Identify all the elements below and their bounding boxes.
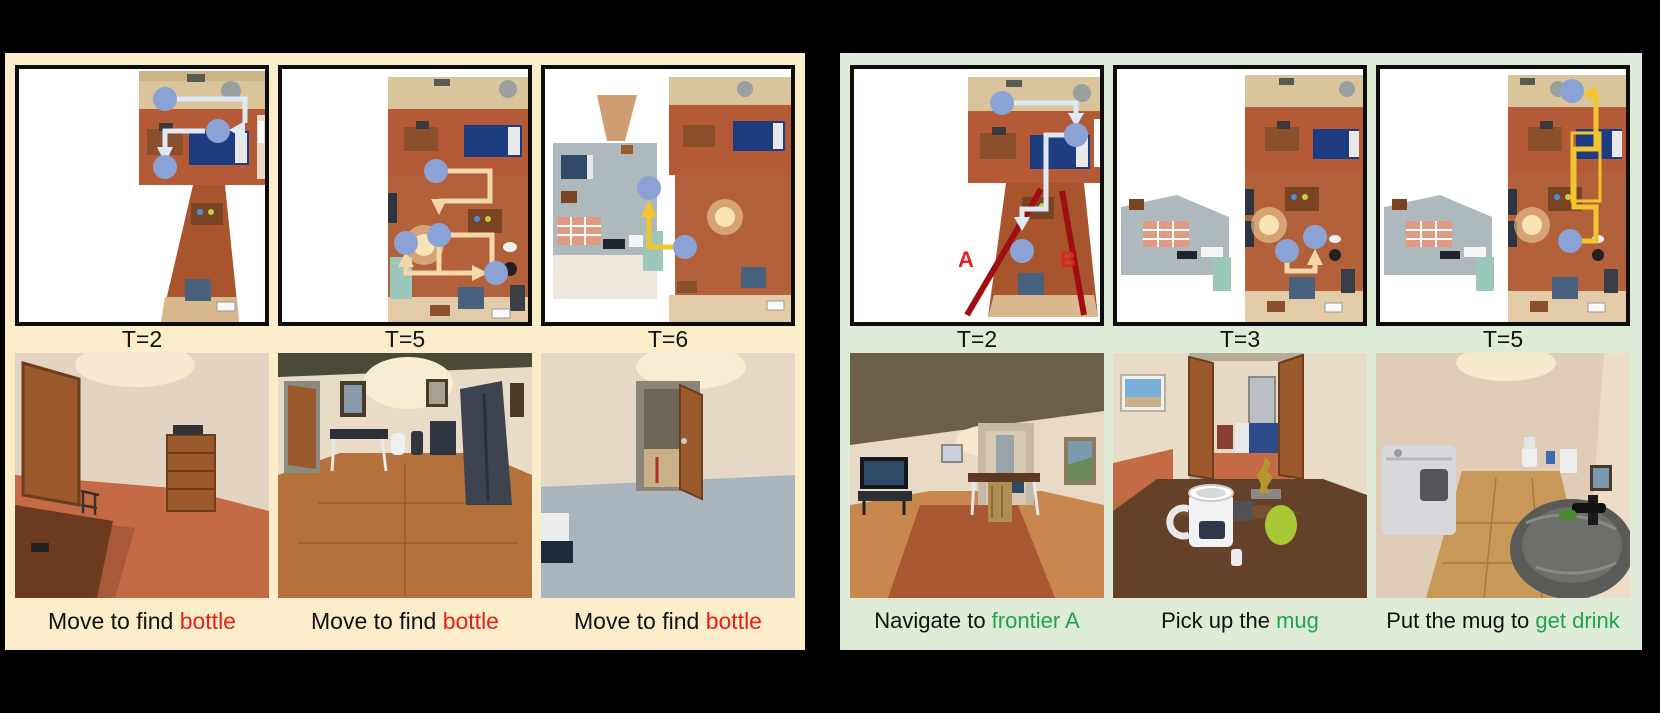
topdown-map-svg xyxy=(282,69,528,322)
caption-text: Pick up the xyxy=(1161,608,1276,633)
time-label: T=2 xyxy=(850,326,1104,353)
caption-highlight: bottle xyxy=(180,608,236,634)
agent-dot xyxy=(990,91,1014,115)
topdown-map-right-t3 xyxy=(1113,65,1367,326)
desk xyxy=(1265,127,1299,151)
left-column-1: T=2 Move to find bo xyxy=(15,65,269,650)
speaker xyxy=(1341,269,1355,293)
pear xyxy=(1265,505,1297,545)
desk xyxy=(1528,127,1562,151)
time-label: T=3 xyxy=(1113,326,1367,353)
caption: Put the mug to get drink xyxy=(1376,608,1630,634)
vacuum-icon xyxy=(1073,84,1091,102)
agent-dot xyxy=(1064,123,1088,147)
painting xyxy=(942,445,962,462)
speaker xyxy=(1604,269,1618,293)
caption-highlight: get drink xyxy=(1535,608,1619,633)
teal-cabinet xyxy=(643,231,663,271)
agent-dot xyxy=(1560,79,1584,103)
caption-text: Put the mug to xyxy=(1386,608,1535,633)
shelf xyxy=(191,203,223,225)
time-label: T=6 xyxy=(541,326,795,353)
topdown-map-left-t5 xyxy=(278,65,532,326)
dresser xyxy=(167,435,215,511)
time-label: T=5 xyxy=(1376,326,1630,353)
agent-dot xyxy=(1303,225,1327,249)
shelf xyxy=(561,191,577,203)
cabinet xyxy=(430,421,456,455)
plaid-bed xyxy=(557,217,601,245)
right-column-1: A B T=2 xyxy=(850,65,1104,650)
caption: Navigate to frontier A xyxy=(850,608,1104,634)
tv-stand xyxy=(858,491,912,501)
inner-floor xyxy=(1201,453,1291,483)
bed-frame xyxy=(541,541,573,563)
small-desk xyxy=(1217,425,1233,449)
blue-box xyxy=(1289,277,1315,299)
table xyxy=(968,473,1040,482)
fpv-svg xyxy=(541,353,795,598)
topdown-map-svg xyxy=(19,69,265,322)
fpv-svg xyxy=(1113,353,1367,598)
plaid-bed xyxy=(1406,221,1452,247)
livingroom-floor xyxy=(675,175,791,299)
caption-highlight: mug xyxy=(1276,608,1319,633)
shelf xyxy=(468,209,502,233)
lamp-glow xyxy=(1522,215,1542,235)
topdown-map-right-t5 xyxy=(1376,65,1630,326)
fpv-svg xyxy=(15,353,269,598)
bed-mattress xyxy=(541,513,569,545)
wall-strip xyxy=(669,77,791,105)
blue-box xyxy=(1018,273,1044,295)
speaker xyxy=(510,285,525,311)
caption-highlight: frontier A xyxy=(992,608,1080,633)
agent-dot xyxy=(394,231,418,255)
teal-cabinet xyxy=(1476,257,1494,291)
desk xyxy=(980,133,1016,159)
door xyxy=(621,145,633,154)
floor xyxy=(541,475,795,598)
lamp-glow xyxy=(715,207,735,227)
frontier-label-a: A xyxy=(958,247,974,272)
caption: Move to find bottle xyxy=(15,608,269,635)
cabinet xyxy=(1560,449,1577,473)
caption-text: Move to find xyxy=(574,608,706,634)
fpv-right-t5 xyxy=(1376,353,1630,598)
mirror xyxy=(1508,189,1517,215)
agent-dot xyxy=(1275,239,1299,263)
caption-highlight: bottle xyxy=(706,608,762,634)
caption: Move to find bottle xyxy=(278,608,532,635)
table xyxy=(15,505,113,598)
agent-dot xyxy=(673,235,697,259)
figure-canvas: T=2 Move to find bo xyxy=(0,0,1660,713)
agent-dot xyxy=(484,261,508,285)
mug-label xyxy=(1199,521,1225,539)
mirror xyxy=(996,435,1014,479)
fpv-left-t5 xyxy=(278,353,532,598)
trash-can xyxy=(1546,451,1555,464)
left-column-3: T=6 Move to find bottle xyxy=(541,65,795,650)
topdown-map-left-t6 xyxy=(541,65,795,326)
fpv-right-t2 xyxy=(850,353,1104,598)
fpv-left-t2 xyxy=(15,353,269,598)
green-item xyxy=(1559,509,1577,521)
caption: Pick up the mug xyxy=(1113,608,1367,634)
right-column-3: T=5 xyxy=(1376,65,1630,650)
agent-dot xyxy=(206,119,230,143)
agent-dot xyxy=(637,176,661,200)
blue-box xyxy=(185,279,211,301)
left-column-2: T=5 xyxy=(278,65,532,650)
trash-can xyxy=(411,431,423,455)
topdown-map-svg xyxy=(1380,69,1626,322)
fpv-svg xyxy=(278,353,532,598)
blue-dresser xyxy=(561,155,591,179)
right-column-2: T=3 xyxy=(1113,65,1367,650)
door xyxy=(288,385,316,469)
washer-door xyxy=(1420,469,1448,501)
topdown-map-svg: A B xyxy=(854,69,1100,322)
vacuum-icon xyxy=(499,80,517,98)
blue-box xyxy=(741,267,766,288)
desk xyxy=(404,127,438,151)
right-panel: A B T=2 xyxy=(840,53,1642,650)
shelf xyxy=(1285,187,1319,211)
table-surface xyxy=(1113,479,1367,598)
topdown-map-svg xyxy=(1117,69,1363,322)
caption: Move to find bottle xyxy=(541,608,795,635)
door xyxy=(23,363,79,505)
small-bottle xyxy=(1231,549,1242,566)
blue-box xyxy=(1552,277,1578,299)
mirror xyxy=(388,193,397,223)
agent-dot xyxy=(427,223,451,247)
door xyxy=(1279,355,1303,479)
plaid-bed xyxy=(1143,221,1189,247)
frontier-label-b: B xyxy=(1060,247,1076,272)
white-object xyxy=(391,433,405,455)
agent-dot xyxy=(153,155,177,179)
door xyxy=(1189,357,1213,479)
fpv-right-t3 xyxy=(1113,353,1367,598)
lamp-glow xyxy=(1259,215,1279,235)
topdown-map-svg xyxy=(545,69,791,322)
caption-text: Navigate to xyxy=(874,608,991,633)
agent-dot xyxy=(1558,229,1582,253)
caption-text: Move to find xyxy=(311,608,443,634)
topdown-map-right-t2: A B xyxy=(850,65,1104,326)
fpv-svg xyxy=(1376,353,1630,598)
vacuum-icon xyxy=(737,81,753,97)
time-label: T=5 xyxy=(278,326,532,353)
shelf xyxy=(1392,199,1407,210)
left-panel: T=2 Move to find bo xyxy=(5,53,805,650)
topdown-map-left-t2 xyxy=(15,65,269,326)
caption-highlight: bottle xyxy=(443,608,499,634)
agent-dot xyxy=(1010,239,1034,263)
shelf xyxy=(1129,199,1144,210)
teal-cabinet xyxy=(1213,257,1231,291)
toilet xyxy=(1522,447,1537,467)
table xyxy=(330,429,388,439)
fpv-left-t6 xyxy=(541,353,795,598)
mirror xyxy=(1245,189,1254,215)
fpv-svg xyxy=(850,353,1104,598)
window xyxy=(510,383,524,417)
agent-dot xyxy=(153,87,177,111)
time-label: T=2 xyxy=(15,326,269,353)
caption-text: Move to find xyxy=(48,608,180,634)
agent-dot xyxy=(424,159,448,183)
blue-box xyxy=(458,287,484,309)
desk xyxy=(683,125,715,147)
vacuum-icon xyxy=(1339,81,1355,97)
